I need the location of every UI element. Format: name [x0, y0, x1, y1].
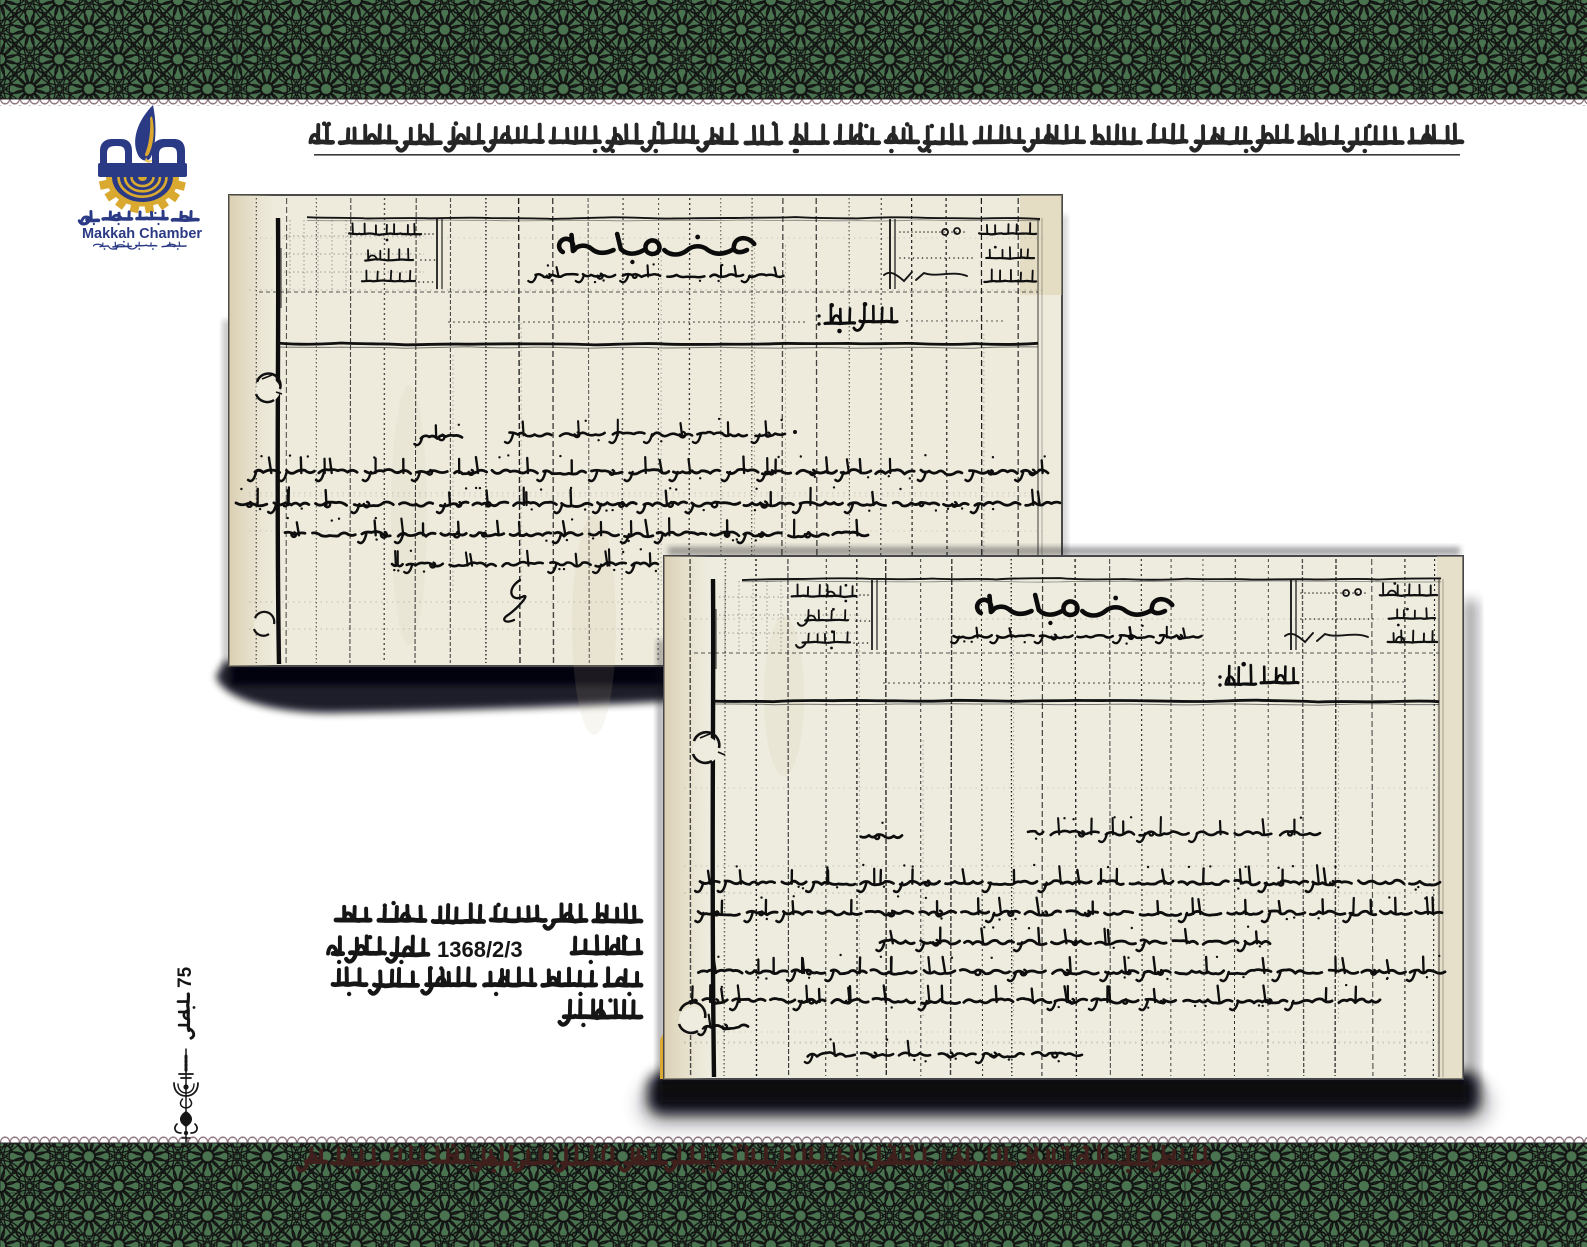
svg-text:Makkah Chamber: Makkah Chamber — [82, 226, 202, 242]
svg-text:75: 75 — [175, 966, 196, 988]
svg-text:1368/2/3: 1368/2/3 — [437, 937, 523, 962]
